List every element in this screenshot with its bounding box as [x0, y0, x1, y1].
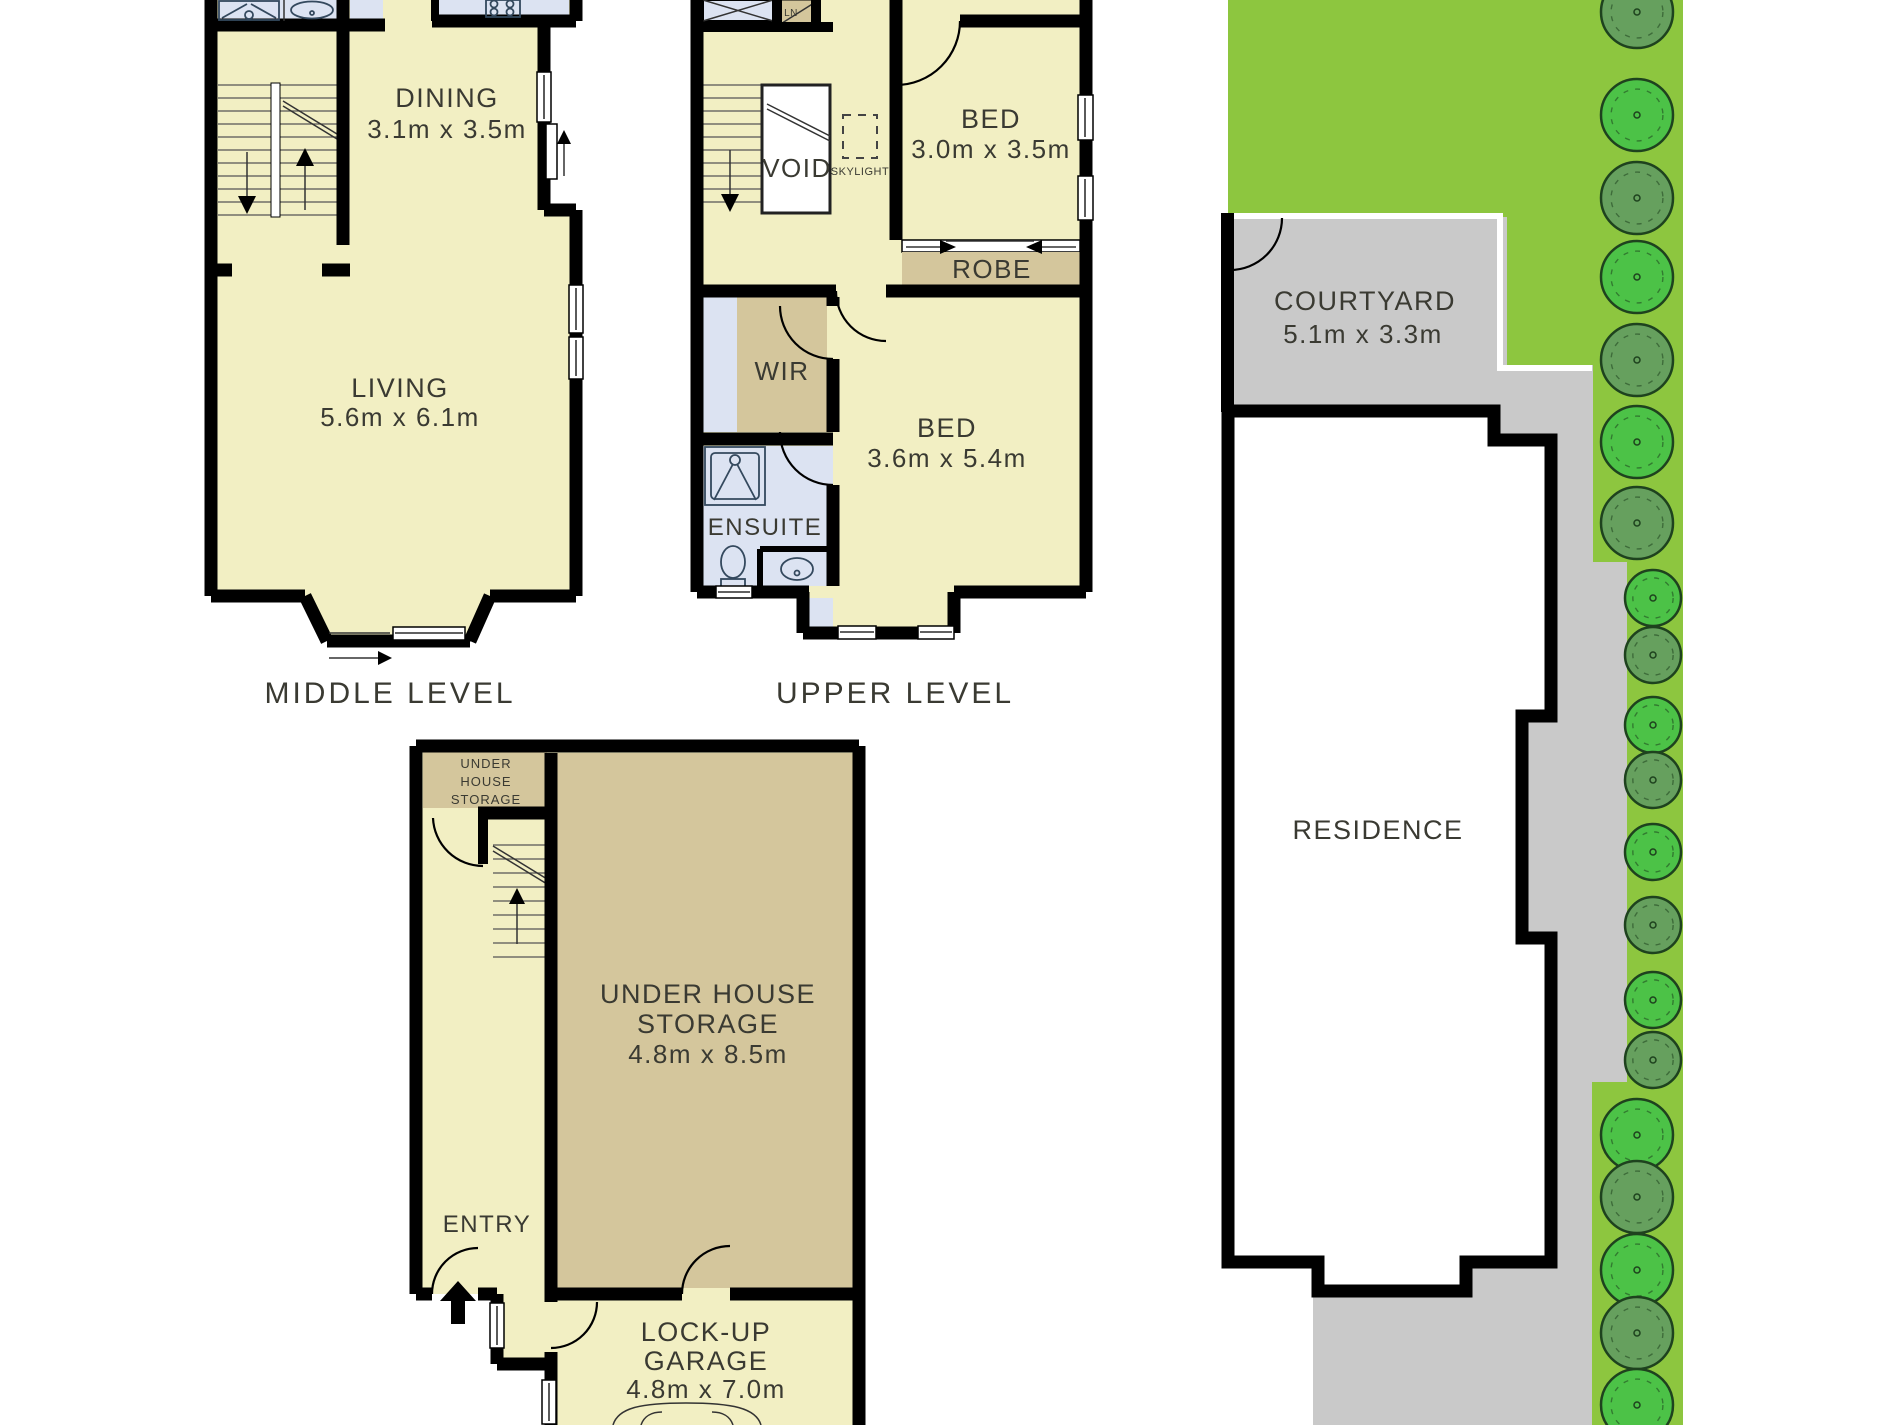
entry-label: ENTRY — [443, 1211, 531, 1238]
tree-icon — [1625, 972, 1681, 1028]
skylight-label: SKYLIGHT — [831, 166, 889, 178]
courtyard-wall — [1221, 213, 1234, 412]
tree-icon — [1601, 406, 1673, 478]
storage-big-dims: 4.8m x 8.5m — [628, 1039, 788, 1069]
living-label: LIVING — [351, 373, 449, 403]
bay-nook-area — [809, 598, 833, 627]
linen-cupboard: LN — [779, 0, 814, 25]
tree-icon — [1625, 824, 1681, 880]
tree-icon — [1601, 1297, 1673, 1369]
tree-icon — [1625, 627, 1681, 683]
residence-label: RESIDENCE — [1292, 815, 1463, 845]
tree-icon — [1601, 1161, 1673, 1233]
wir-label: WIR — [754, 356, 809, 386]
site-plan: COURTYARD 5.1m x 3.3m RESIDENCE — [1221, 0, 1683, 1425]
living-dims: 5.6m x 6.1m — [320, 402, 480, 432]
kitchen-area — [438, 0, 569, 15]
middle-level-title: MIDDLE LEVEL — [264, 677, 515, 710]
storage-small-l3: STORAGE — [451, 792, 521, 807]
upper-level-title: UPPER LEVEL — [776, 677, 1014, 710]
bed1-label: BED — [961, 104, 1021, 134]
tree-icon — [1601, 79, 1673, 151]
garage-l1: LOCK-UP — [641, 1317, 772, 1347]
floorplan-page: DINING 3.1m x 3.5m LIVING 5.6m x 6.1m MI… — [0, 0, 1900, 1425]
bath-strip-area — [703, 297, 737, 432]
storage-big-l2: STORAGE — [637, 1009, 779, 1039]
robe-label: ROBE — [952, 254, 1032, 284]
garage-l2: GARAGE — [644, 1346, 769, 1376]
tree-icon — [1601, 487, 1673, 559]
bed1-dims: 3.0m x 3.5m — [911, 134, 1071, 164]
garage-dims: 4.8m x 7.0m — [626, 1374, 786, 1404]
storage-small-l2: HOUSE — [460, 774, 511, 789]
courtyard-dims: 5.1m x 3.3m — [1283, 319, 1443, 349]
residence-outline — [1228, 411, 1551, 1291]
tree-icon — [1601, 241, 1673, 313]
void-label: VOID — [762, 153, 832, 183]
dining-label: DINING — [395, 83, 499, 113]
plan-middle-level: DINING 3.1m x 3.5m LIVING 5.6m x 6.1m MI… — [205, 0, 583, 710]
skylight-window-icon — [703, 0, 773, 21]
tree-icon — [1625, 697, 1681, 753]
plan-upper-level: LN — [697, 0, 1093, 710]
tree-icon — [1625, 752, 1681, 808]
storage-big-l1: UNDER HOUSE — [600, 979, 816, 1009]
site-cutout — [1221, 1268, 1313, 1425]
tree-icon — [1625, 897, 1681, 953]
tree-icon — [1601, 162, 1673, 234]
floorplan-canvas: DINING 3.1m x 3.5m LIVING 5.6m x 6.1m MI… — [0, 0, 1900, 1425]
robe-track — [902, 240, 1080, 252]
bed2-dims: 3.6m x 5.4m — [867, 443, 1027, 473]
courtyard-label: COURTYARD — [1274, 286, 1456, 316]
tree-icon — [1601, 324, 1673, 396]
bed2-label: BED — [917, 413, 977, 443]
storage-small-l1: UNDER — [460, 756, 511, 771]
tree-icon — [1601, 1234, 1673, 1306]
tree-icon — [1625, 570, 1681, 626]
wc-area — [350, 0, 383, 19]
middle-floor-area — [211, 0, 576, 641]
linen-label: LN — [784, 8, 798, 19]
tree-icon — [1625, 1032, 1681, 1088]
dining-dims: 3.1m x 3.5m — [367, 114, 527, 144]
plan-ground-level: UNDER HOUSE STORAGE UNDER HOUSE STORAGE … — [416, 746, 859, 1425]
ensuite-label: ENSUITE — [708, 514, 823, 541]
